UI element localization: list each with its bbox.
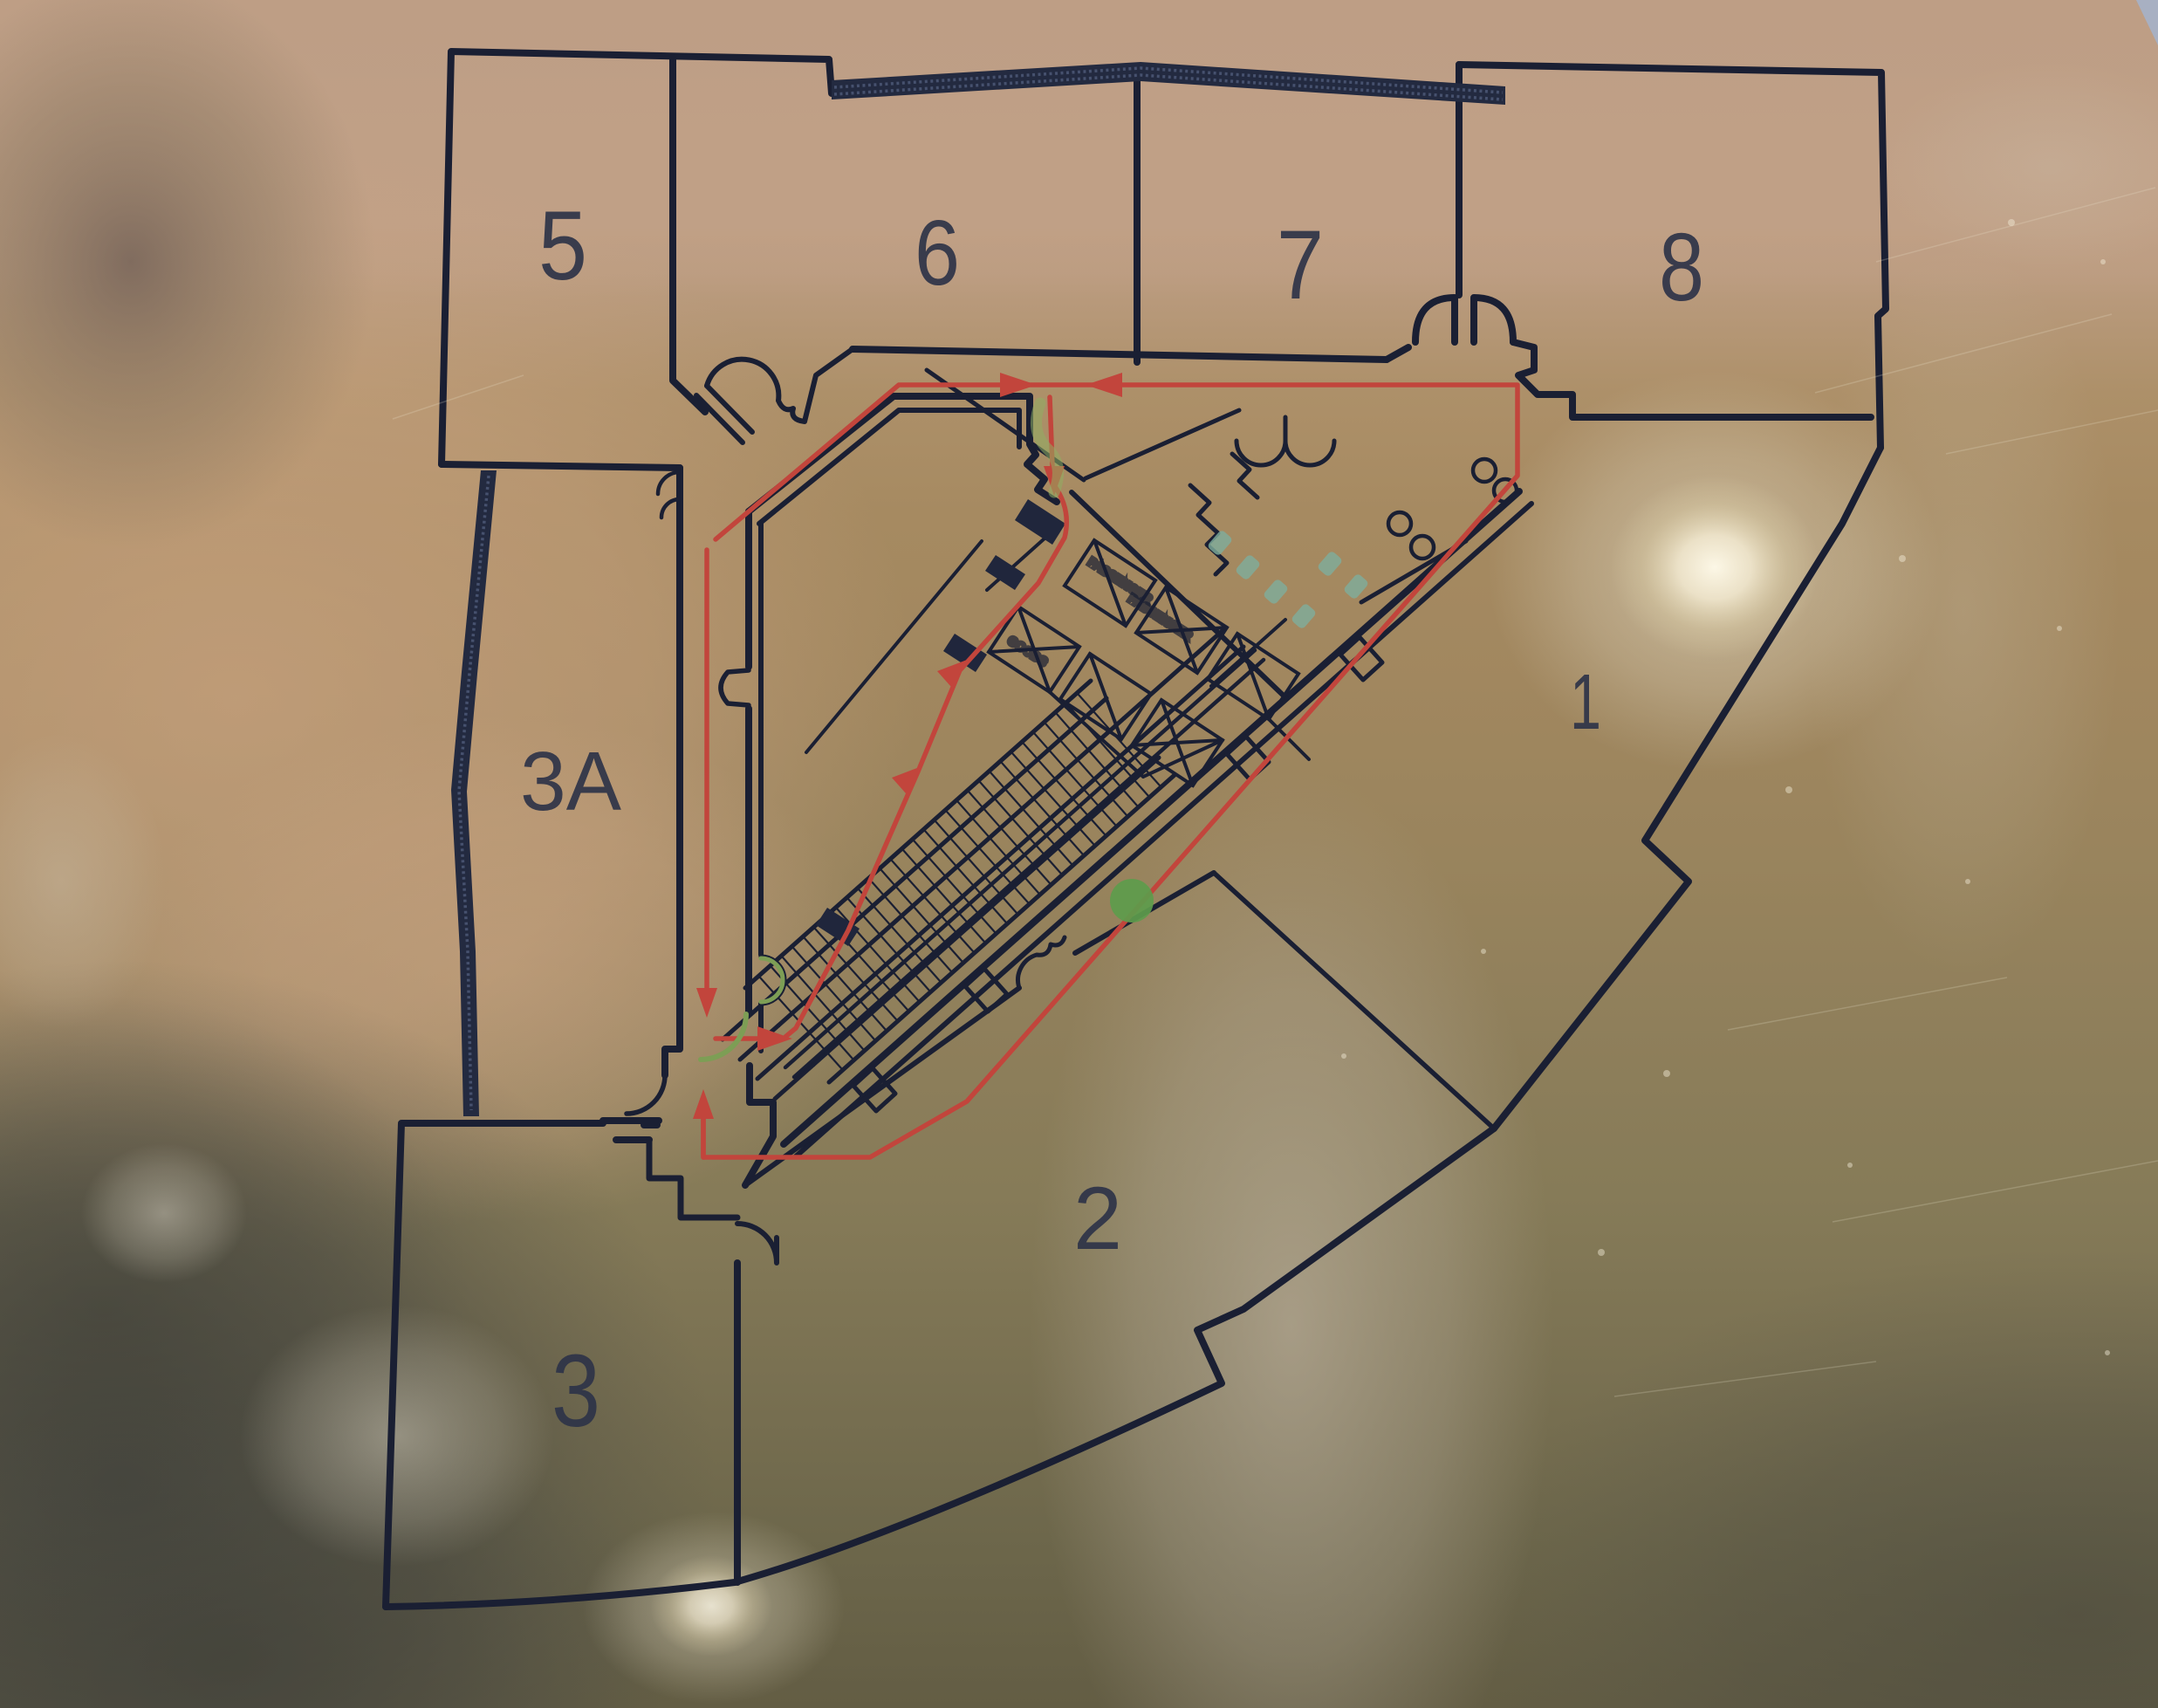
svg-text:2: 2 bbox=[1073, 1169, 1122, 1268]
svg-text:3: 3 bbox=[551, 1334, 600, 1449]
svg-text:6: 6 bbox=[915, 202, 960, 305]
svg-text:3A: 3A bbox=[520, 735, 621, 828]
svg-text:5: 5 bbox=[538, 191, 587, 300]
svg-text:1: 1 bbox=[1570, 659, 1601, 746]
svg-text:7: 7 bbox=[1277, 210, 1324, 319]
svg-text:8: 8 bbox=[1659, 214, 1704, 321]
